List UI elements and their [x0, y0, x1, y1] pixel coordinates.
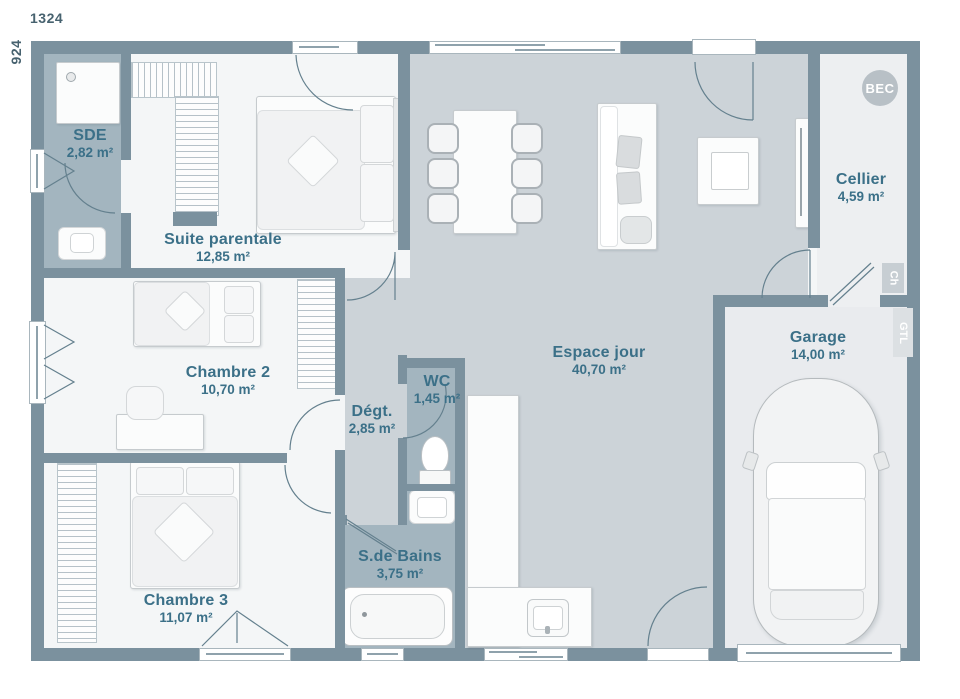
entry-door-arc	[695, 62, 753, 120]
suite-door-arc	[347, 252, 395, 300]
floor-plan: 1324 924	[0, 0, 960, 699]
cellier-door-arc	[762, 250, 810, 298]
room-label-degagement: Dégt. 2,85 m²	[349, 403, 396, 437]
dimension-height-label: 924	[1, 37, 31, 67]
ch-badge: Ch	[882, 263, 904, 293]
room-label-chambre3: Chambre 3 11,07 m²	[144, 592, 229, 626]
room-label-sde: SDE 2,82 m²	[67, 127, 114, 161]
room-label-salle-de-bains: S.de Bains 3,75 m²	[358, 548, 442, 582]
room-label-chambre2: Chambre 2 10,70 m²	[186, 364, 271, 398]
room-label-suite-parentale: Suite parentale 12,85 m²	[164, 231, 282, 265]
chambre2-door-arc	[290, 400, 340, 450]
room-label-cellier: Cellier 4,59 m²	[836, 171, 886, 205]
room-label-wc: WC 1,45 m²	[414, 373, 461, 407]
gtl-badge: GTL	[893, 308, 913, 357]
dimension-width-label: 1324	[30, 10, 63, 26]
window-suite-swing-arc	[296, 55, 353, 110]
chambre3-door-arc	[285, 465, 331, 513]
bec-badge: BEC	[862, 70, 898, 106]
room-label-garage: Garage 14,00 m²	[790, 329, 846, 363]
cellier-garage-door-leaf	[830, 263, 874, 305]
room-label-espace-jour: Espace jour 40,70 m²	[553, 344, 646, 378]
window-chambre2-casement	[44, 325, 74, 399]
rear-door-arc	[648, 587, 707, 646]
